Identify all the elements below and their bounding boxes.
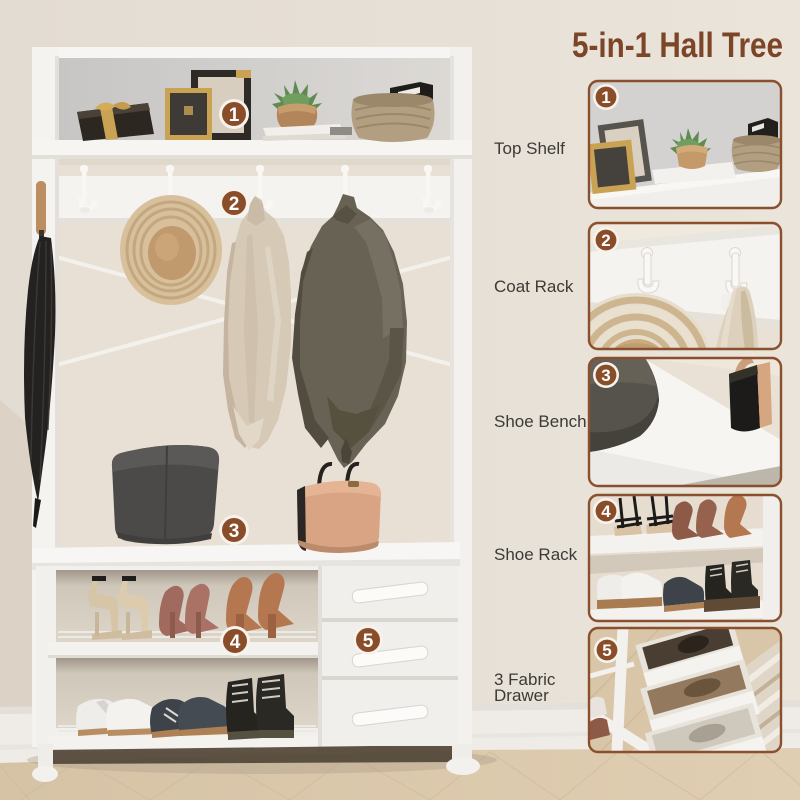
svg-text:Top Shelf: Top Shelf [494, 139, 565, 158]
svg-text:Shoe Rack: Shoe Rack [494, 545, 578, 564]
svg-text:5: 5 [363, 631, 374, 652]
svg-text:2: 2 [601, 231, 610, 250]
svg-text:4: 4 [601, 502, 611, 521]
svg-text:Coat Rack: Coat Rack [494, 277, 574, 296]
svg-text:2: 2 [229, 194, 240, 215]
svg-text:1: 1 [601, 88, 610, 107]
svg-text:Shoe Bench: Shoe Bench [494, 412, 587, 431]
svg-text:3: 3 [229, 521, 240, 542]
svg-text:5: 5 [602, 641, 611, 660]
svg-text:3: 3 [601, 366, 610, 385]
svg-text:5-in-1 Hall Tree: 5-in-1 Hall Tree [572, 26, 783, 65]
svg-text:Drawer: Drawer [494, 686, 549, 705]
svg-text:1: 1 [229, 105, 240, 126]
svg-text:4: 4 [230, 632, 241, 653]
